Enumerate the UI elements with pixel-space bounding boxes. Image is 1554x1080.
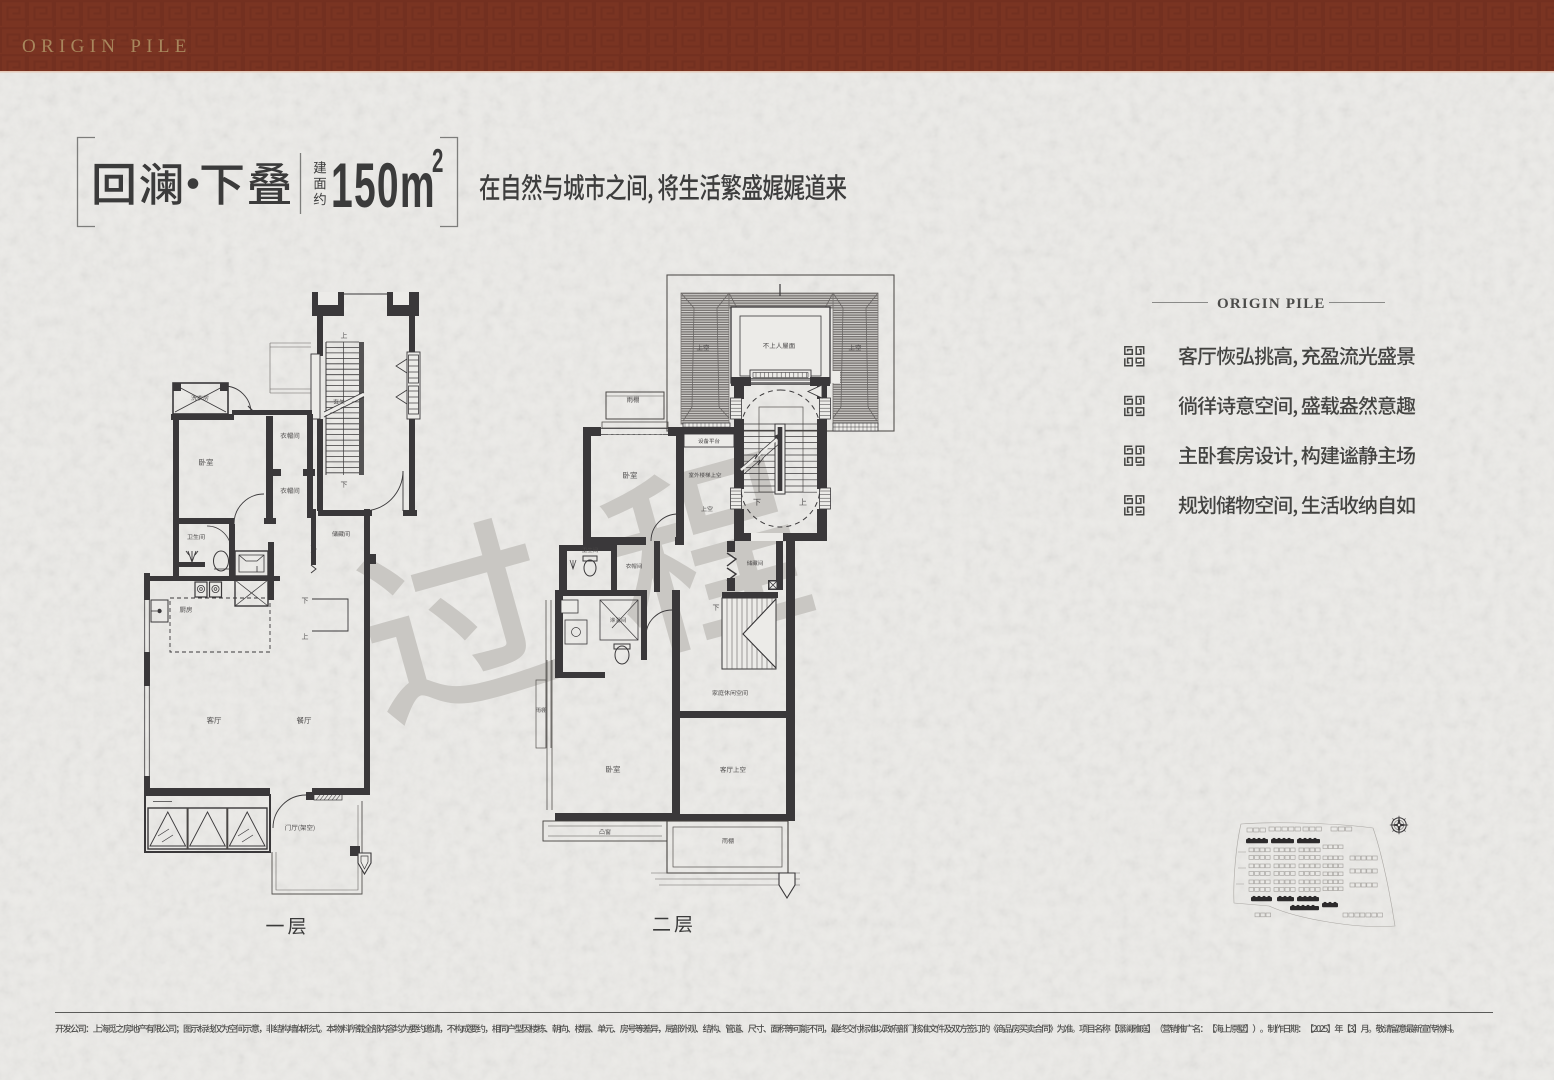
svg-text:ORIGIN PILE: ORIGIN PILE [22, 36, 192, 57]
svg-text:150m: 150m [331, 152, 436, 222]
svg-text:2: 2 [432, 142, 443, 179]
svg-text:ORIGIN PILE: ORIGIN PILE [1217, 296, 1326, 312]
